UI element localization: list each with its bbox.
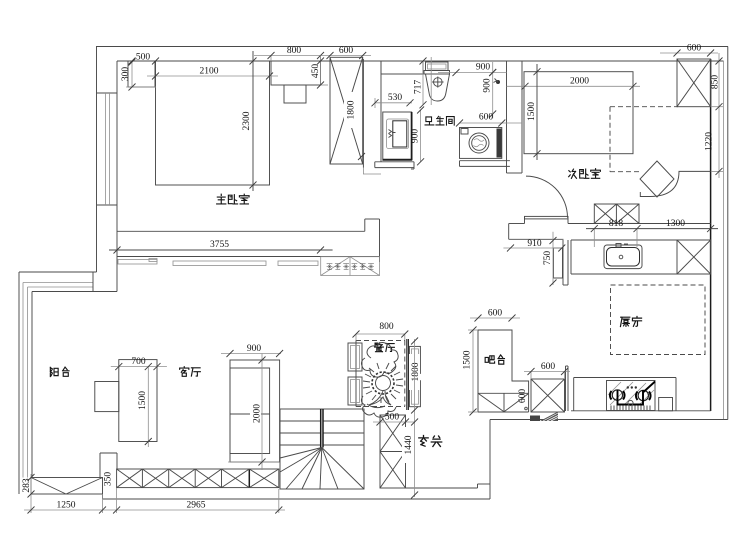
svg-text:910: 910	[527, 239, 542, 249]
svg-text:600: 600	[488, 309, 503, 319]
svg-text:300: 300	[121, 67, 131, 82]
svg-text:717: 717	[414, 80, 424, 95]
svg-text:600: 600	[541, 362, 556, 372]
svg-text:600: 600	[479, 113, 494, 123]
svg-text:800: 800	[287, 46, 302, 56]
svg-text:750: 750	[543, 251, 553, 266]
svg-text:850: 850	[711, 75, 721, 90]
svg-text:1220: 1220	[705, 132, 715, 151]
svg-text:900: 900	[476, 63, 491, 73]
svg-text:600: 600	[687, 44, 702, 54]
svg-text:700: 700	[131, 357, 146, 367]
svg-text:500: 500	[385, 413, 400, 423]
svg-text:900: 900	[411, 129, 421, 144]
svg-text:283: 283	[22, 478, 32, 493]
svg-text:2300: 2300	[242, 111, 252, 130]
svg-text:800: 800	[379, 322, 394, 332]
svg-text:2965: 2965	[187, 501, 206, 511]
svg-text:2000: 2000	[253, 404, 263, 423]
svg-text:900: 900	[483, 78, 493, 93]
svg-text:500: 500	[136, 53, 151, 63]
svg-text:2000: 2000	[570, 77, 589, 87]
svg-text:1500: 1500	[527, 102, 537, 121]
svg-text:350: 350	[104, 472, 114, 487]
svg-text:600: 600	[339, 46, 354, 56]
svg-text:450: 450	[311, 64, 321, 79]
svg-text:1500: 1500	[463, 350, 473, 369]
svg-text:900: 900	[247, 344, 262, 354]
svg-text:1440: 1440	[404, 435, 414, 454]
svg-text:600: 600	[518, 389, 528, 404]
svg-text:1300: 1300	[666, 219, 685, 229]
svg-text:818: 818	[609, 219, 624, 229]
svg-text:530: 530	[388, 93, 403, 103]
svg-text:1250: 1250	[57, 501, 76, 511]
svg-text:1500: 1500	[138, 391, 148, 410]
svg-text:2100: 2100	[200, 67, 219, 77]
svg-text:1800: 1800	[411, 362, 421, 381]
svg-text:1800: 1800	[347, 100, 357, 119]
svg-text:3755: 3755	[210, 240, 229, 250]
